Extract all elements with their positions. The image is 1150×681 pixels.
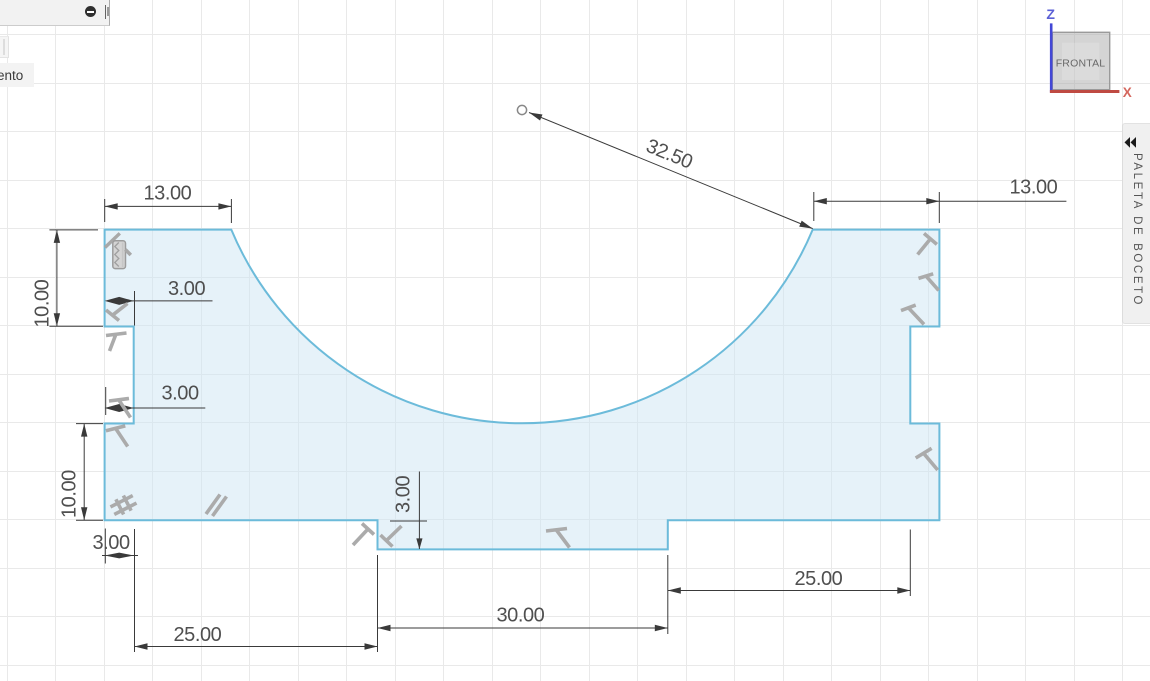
svg-text:10.00: 10.00 — [59, 470, 81, 518]
svg-text:32.50: 32.50 — [643, 135, 696, 174]
svg-text:13.00: 13.00 — [144, 182, 192, 204]
svg-text:3.00: 3.00 — [168, 278, 205, 300]
svg-text:FRONTAL: FRONTAL — [1056, 58, 1106, 70]
svg-text:Z: Z — [1046, 6, 1055, 22]
svg-text:X: X — [1123, 85, 1132, 100]
svg-text:13.00: 13.00 — [1010, 176, 1058, 198]
svg-text:3.00: 3.00 — [393, 476, 415, 513]
svg-text:3.00: 3.00 — [162, 383, 199, 405]
svg-text:3.00: 3.00 — [93, 532, 130, 554]
svg-text:25.00: 25.00 — [174, 624, 222, 646]
svg-text:25.00: 25.00 — [795, 568, 843, 590]
svg-text:10.00: 10.00 — [32, 279, 54, 327]
svg-text:30.00: 30.00 — [497, 605, 545, 627]
